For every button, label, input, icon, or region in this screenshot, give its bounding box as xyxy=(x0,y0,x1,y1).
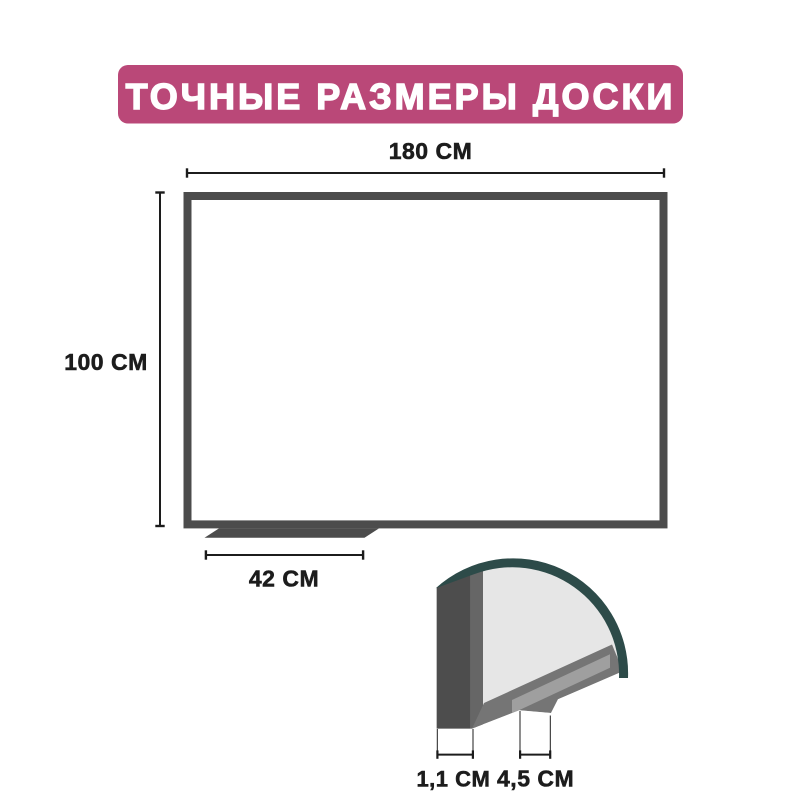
svg-text:100 CM: 100 CM xyxy=(64,349,148,375)
svg-text:180 CM: 180 CM xyxy=(389,138,473,164)
svg-text:4,5 CM: 4,5 CM xyxy=(497,766,574,792)
svg-text:42 CM: 42 CM xyxy=(249,566,319,592)
svg-text:ТОЧНЫЕ РАЗМЕРЫ ДОСКИ: ТОЧНЫЕ РАЗМЕРЫ ДОСКИ xyxy=(126,76,676,117)
svg-text:1,1 CM: 1,1 CM xyxy=(416,767,490,792)
